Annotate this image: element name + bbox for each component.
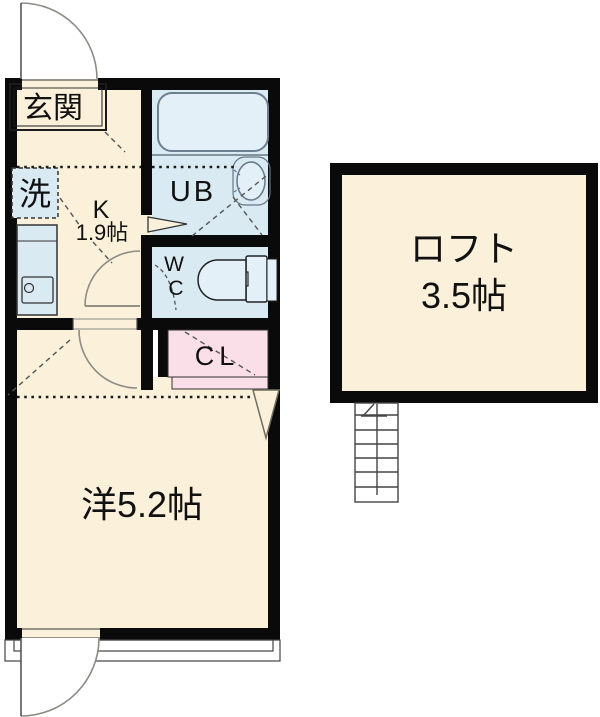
closet-door-strip [172, 377, 268, 389]
toilet [198, 256, 277, 302]
closet-label: CL [195, 341, 240, 371]
loft-size-label: 3.5帖 [421, 275, 507, 316]
loft-ladder [355, 403, 398, 502]
loft-name-label: ロフト [410, 228, 518, 269]
unit-bath-label: UB [170, 176, 216, 208]
western-room-label: 洋5.2帖 [81, 484, 203, 525]
entrance-door-swing [21, 3, 97, 79]
kitchen-counter [17, 225, 57, 315]
washer-label: 洗 [19, 176, 51, 212]
wc-label-c: C [168, 277, 183, 300]
bottom-door-swing [21, 638, 99, 716]
entrance-label: 玄関 [23, 92, 83, 125]
bathtub [152, 93, 268, 155]
floor-plan-drawing: 玄関 洗 K 1.9帖 UB W C CL 洋5.2帖 ロフト 3.5帖 [0, 0, 600, 717]
kitchen-size-label: 1.9帖 [76, 220, 129, 245]
floor-plan-page: 玄関 洗 K 1.9帖 UB W C CL 洋5.2帖 ロフト 3.5帖 [0, 0, 600, 717]
entrance-door-opening [22, 78, 98, 90]
wc-label-w: W [164, 253, 184, 276]
